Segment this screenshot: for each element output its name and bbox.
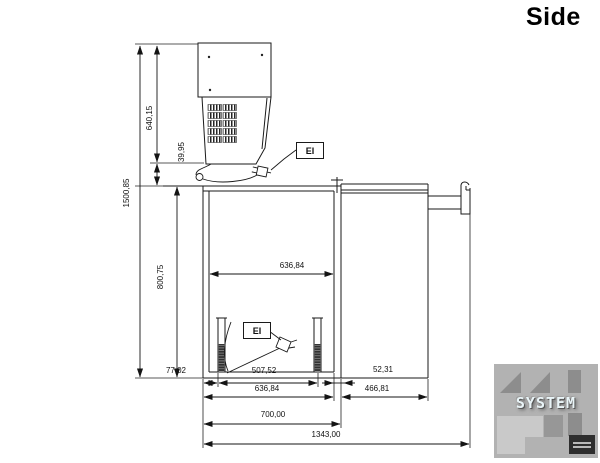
electrical-callout-bottom: EI (243, 322, 271, 339)
plug-icon-bottom (276, 337, 297, 352)
electrical-callout-top: EI (296, 142, 324, 159)
bin-handle (428, 182, 470, 214)
extension-lines (135, 44, 470, 448)
dim-head-height: 640,15 (146, 106, 154, 130)
head-unit (196, 43, 296, 182)
callout-leader-top (271, 150, 296, 170)
dim-right-section-width: 466,81 (365, 385, 389, 393)
bin-top-edge (163, 186, 341, 191)
dim-total-width: 1343,00 (312, 431, 341, 439)
page-title: Side (526, 3, 581, 32)
dim-total-height: 1500,85 (123, 179, 131, 208)
dim-foot-offset: 77,02 (166, 367, 186, 375)
dim-rail-spacing: 507,52 (252, 367, 276, 375)
bin-lid (331, 177, 428, 193)
watermark-brand-text: SYSTEM (494, 394, 598, 412)
screw-icon (208, 56, 210, 58)
dimension-lines (140, 46, 469, 444)
power-cable-top (196, 164, 257, 182)
watermark-badge (569, 435, 595, 454)
screw-icon (261, 54, 263, 56)
watermark-logo: SYSTEM (494, 364, 598, 458)
storage-bin (163, 177, 470, 378)
dim-gap-below-head: 39,95 (178, 142, 186, 162)
head-lid (198, 43, 271, 97)
dim-wall-offset: 52,31 (373, 366, 393, 374)
dim-inner-width-top: 636,84 (280, 262, 304, 270)
dim-bin-width: 636,84 (255, 385, 279, 393)
dim-depth: 700,00 (261, 411, 285, 419)
side-view-drawing: Side 640,15 39,95 1500,85 800,75 636,84 … (0, 0, 600, 459)
screw-icon (209, 89, 211, 91)
dim-bin-height: 800,75 (157, 265, 165, 289)
